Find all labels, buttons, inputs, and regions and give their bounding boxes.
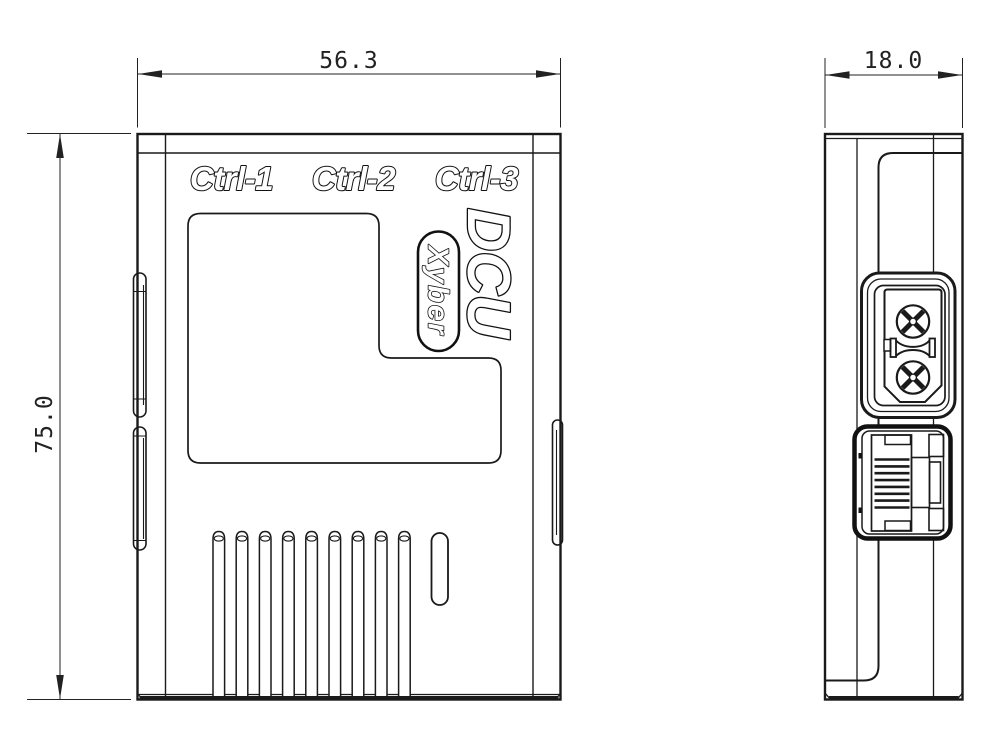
vent-slot <box>283 532 295 700</box>
vent-slot <box>329 532 341 700</box>
vent-slot <box>236 532 248 700</box>
port-label-ctrl1: Ctrl-1 <box>190 160 273 197</box>
status-led-slot <box>432 533 449 605</box>
vent-slot <box>399 532 411 700</box>
width-dimension-label: 56.3 <box>319 48 378 74</box>
arrowhead-top <box>56 134 64 158</box>
arrowhead-bottom <box>56 675 64 699</box>
arrowhead-left <box>826 71 850 79</box>
rj45-ethernet-port <box>855 427 951 539</box>
vent-slot <box>259 532 271 700</box>
product-name-label: DCU <box>455 208 522 340</box>
vent-slot <box>306 532 318 700</box>
cad-drawing-sheet: 56.3 18.0 75.0 Ctrl-1 Ctrl-2 Ctrl-3 DCU … <box>0 0 1000 737</box>
vent-slot <box>375 532 387 700</box>
mounting-tab-left-lower <box>134 427 147 550</box>
xt30-power-connector <box>862 273 956 418</box>
vent-slot <box>352 532 364 700</box>
port-label-ctrl3: Ctrl-3 <box>435 160 518 197</box>
side-bottom-edge <box>825 693 963 699</box>
brand-badge-label: Xyber <box>422 244 454 337</box>
arrowhead-right <box>938 71 962 79</box>
arrowhead-right <box>536 70 560 78</box>
vent-slot <box>213 532 225 700</box>
side-view <box>825 134 963 700</box>
brand-badge: Xyber <box>418 232 459 352</box>
mounting-tab-left-upper <box>134 273 147 417</box>
vent-slots <box>213 532 410 700</box>
height-dimension-label: 75.0 <box>32 394 58 453</box>
arrowhead-left <box>138 70 162 78</box>
depth-dimension-label: 18.0 <box>864 48 923 74</box>
drawing-linework: 56.3 18.0 75.0 Ctrl-1 Ctrl-2 Ctrl-3 DCU … <box>0 0 1000 737</box>
port-label-ctrl2: Ctrl-2 <box>312 160 396 197</box>
